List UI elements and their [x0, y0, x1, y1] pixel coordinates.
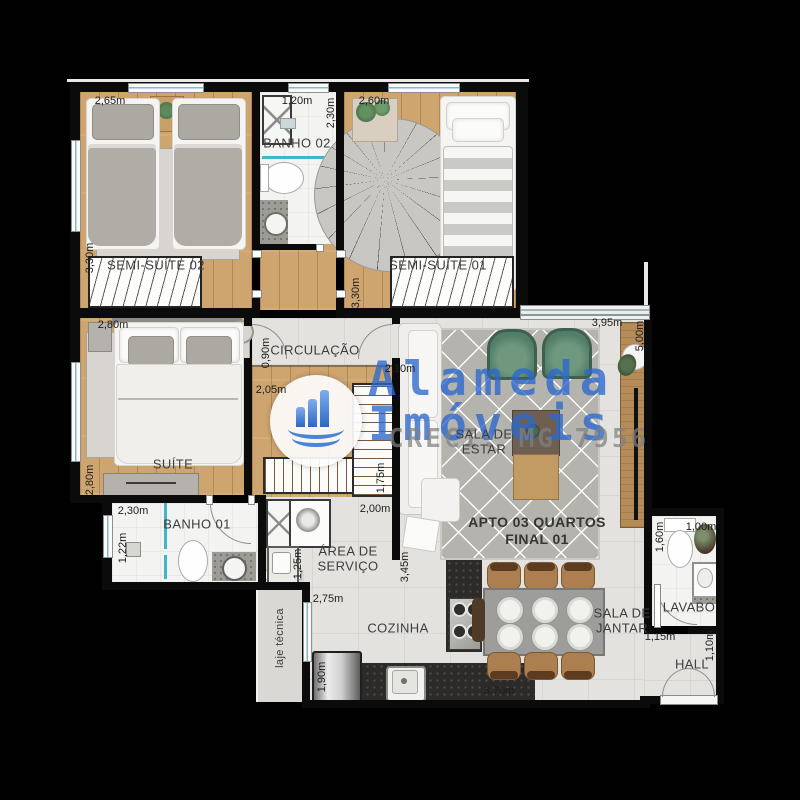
unit-title-line1: APTO 03 QUARTOS [468, 514, 606, 530]
vestibule-floor [260, 244, 336, 310]
bed-pillow [186, 336, 232, 366]
door-jamb [252, 250, 262, 258]
dim-lavabo-width: 1,00m [686, 521, 717, 533]
door-jamb [316, 244, 324, 252]
room-label-banho-02: BANHO 02 [263, 136, 331, 151]
burner [452, 624, 467, 639]
wall [260, 244, 316, 250]
sink-basin [264, 212, 288, 236]
dim-lavabo-depth: 1,60m [654, 522, 666, 553]
room-label-sala-estar-1: SALA DE [456, 427, 513, 442]
dim-sala-estar-depth: 5,00m [634, 321, 646, 352]
room-label-suite: SUÍTE [153, 457, 193, 472]
room-label-laje-tecnica: laje técnica [274, 608, 286, 668]
toilet-tank [260, 164, 269, 192]
room-label-sala-estar-2: ESTAR [462, 442, 506, 457]
wall [302, 700, 650, 708]
bed-pillow [128, 336, 174, 366]
room-label-circulacao: CIRCULAÇÃO [270, 343, 359, 358]
dim-cozinha-depth: 3,45m [399, 552, 411, 583]
balcony-window [520, 305, 650, 320]
throw-pillow [402, 516, 441, 553]
wall [336, 92, 344, 250]
washer-drum [296, 508, 320, 532]
door-jamb [336, 290, 346, 298]
plate [532, 624, 558, 650]
dim-cozinha-width: 3,70m [484, 685, 515, 697]
wall [644, 508, 724, 516]
room-label-area-servico-1: ÁREA DE [318, 544, 377, 559]
dim-closet-depth: 1,75m [375, 463, 387, 494]
window [71, 140, 81, 232]
wall [336, 308, 520, 318]
bed-duvet [116, 364, 242, 464]
floor-plan-canvas: Alameda Imóveis CRECI: MG 7956 SEMI-SUÍT… [0, 0, 800, 800]
dresser-handle [126, 482, 176, 484]
room-label-area-servico-2: SERVIÇO [317, 559, 378, 574]
sofa-chaise [421, 478, 460, 522]
plate [567, 597, 593, 623]
door-jamb [336, 250, 346, 258]
dim-servico-side: 1,25m [292, 549, 304, 580]
window [128, 83, 204, 93]
toilet [264, 162, 304, 194]
dim-servico-width: 2,00m [360, 503, 391, 515]
room-label-sala-jantar-1: SALA DE [594, 606, 651, 621]
bed-duvet [88, 144, 156, 246]
dining-chair [524, 652, 558, 680]
faucet-icon [401, 678, 407, 684]
dim-banho-02-depth: 2,30m [325, 98, 337, 129]
wall [640, 696, 662, 704]
room-label-semi-suite-02: SEMI-SUÍTE 02 [107, 258, 205, 273]
dim-banho-01-width: 2,30m [118, 505, 149, 517]
duvet-fold-line [118, 398, 238, 400]
dim-hall-depth: 1,10m [704, 631, 716, 662]
logo-wave-icon [292, 429, 340, 447]
dim-circulacao-length: 2,10m [385, 363, 416, 375]
dining-chair [524, 562, 558, 590]
dim-semi-suite-01-width: 2,60m [359, 95, 390, 107]
wall [102, 582, 310, 590]
wall [244, 318, 252, 326]
dim-circulacao-leg: 2,05m [256, 384, 287, 396]
dim-hall-width: 1,15m [645, 631, 676, 643]
room-label-lavabo: LAVABO [663, 600, 716, 615]
dim-circulacao-width: 0,90m [260, 338, 272, 369]
toilet [667, 530, 693, 568]
door-jamb [206, 495, 213, 505]
tv-screen [634, 388, 638, 520]
dining-chair [561, 562, 595, 590]
wall [252, 92, 260, 250]
dresser [103, 473, 199, 496]
wall [258, 495, 266, 590]
lavabo-sink-basin [697, 568, 713, 588]
room-label-cozinha: COZINHA [367, 621, 428, 636]
laundry-sink-basin [272, 552, 291, 574]
dining-chair [487, 562, 521, 590]
coffee-table-wood [513, 454, 559, 500]
dim-servico-length: 2,75m [313, 593, 344, 605]
wall [716, 508, 724, 704]
wall-faucet-icon [280, 118, 296, 129]
wall [70, 308, 260, 318]
wall [516, 82, 528, 318]
dim-banho-02-width: 1,20m [282, 95, 313, 107]
plate [532, 597, 558, 623]
door-jamb [248, 495, 255, 505]
window [71, 362, 81, 462]
plate [497, 624, 523, 650]
bed-duvet [174, 144, 242, 246]
door-jamb [252, 290, 262, 298]
plate [567, 624, 593, 650]
wall [70, 495, 210, 503]
end-chair [472, 598, 485, 642]
wall [392, 318, 400, 324]
window [388, 83, 460, 93]
dim-sala-estar-width: 3,95m [592, 317, 623, 329]
window [303, 602, 312, 662]
watermark-creci: CRECI: MG 7956 [388, 424, 649, 454]
dim-semi-suite-02-depth: 3,30m [84, 243, 96, 274]
plate [497, 597, 523, 623]
unit-title-line2: FINAL 01 [505, 531, 569, 547]
wall-stub [644, 262, 648, 308]
room-label-semi-suite-01: SEMI-SUÍTE 01 [389, 258, 487, 273]
window [288, 83, 329, 93]
dim-fridge-width: 1,90m [316, 662, 328, 693]
bed-pillow [92, 104, 154, 140]
dim-suite-width: 2,80m [98, 319, 129, 331]
dim-semi-suite-01-depth: 3,30m [350, 278, 362, 309]
dining-chair [487, 652, 521, 680]
sink-basin [222, 556, 247, 581]
wall [244, 358, 252, 495]
window [103, 515, 113, 558]
room-label-banho-01: BANHO 01 [163, 517, 231, 532]
bed-pillow [452, 118, 504, 142]
dim-semi-suite-02-width: 2,65m [95, 95, 126, 107]
door-leaf [654, 584, 661, 628]
shower-glass [164, 555, 167, 579]
bed-pillow [178, 104, 240, 140]
burner [452, 602, 467, 617]
dining-chair [561, 652, 595, 680]
toilet [178, 540, 208, 582]
dim-suite-depth: 2,80m [84, 465, 96, 496]
dim-banho-01-depth: 1,22m [117, 533, 129, 564]
room-label-sala-jantar-2: JANTAR [596, 621, 648, 636]
